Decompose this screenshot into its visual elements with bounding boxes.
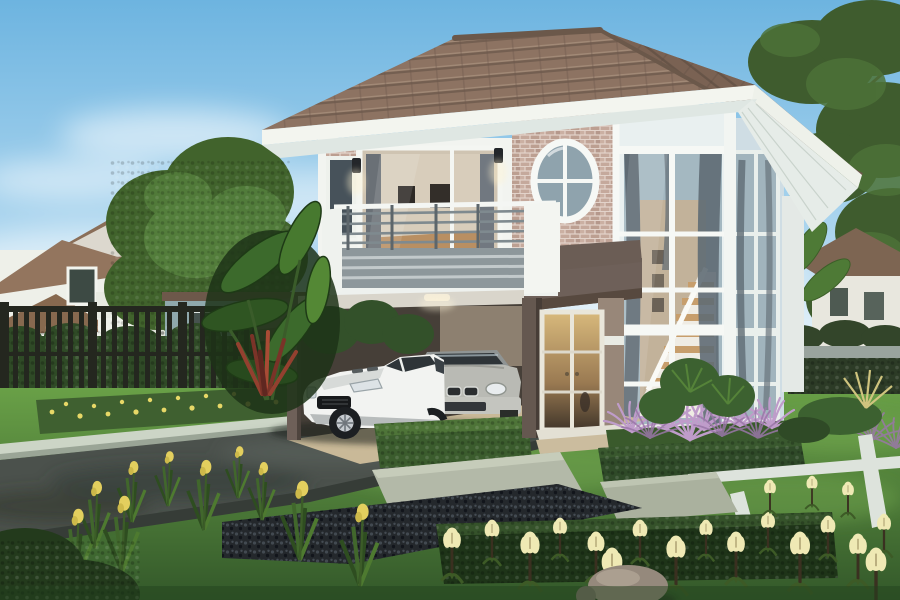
house-render [0,0,900,600]
scene-image [0,0,900,600]
foreground-shade [0,586,900,600]
right-wall [782,196,804,392]
entrance-doors [542,312,602,430]
